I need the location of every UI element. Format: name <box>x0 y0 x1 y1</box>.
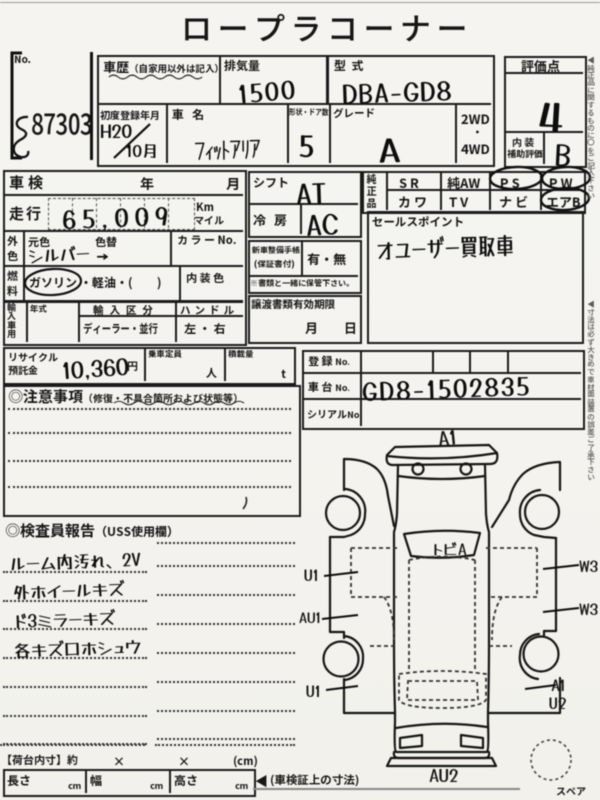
svg-text:AU1: AU1 <box>299 608 321 628</box>
svg-text:W3: W3 <box>579 556 598 577</box>
svg-text:W3: W3 <box>579 599 598 620</box>
svg-text:U2: U2 <box>549 693 566 714</box>
svg-text:AU2: AU2 <box>429 762 459 787</box>
svg-text:A1: A1 <box>437 423 458 452</box>
svg-text:U1: U1 <box>306 681 321 702</box>
svg-text:トビA: トビA <box>432 539 467 560</box>
svg-text:U1: U1 <box>304 565 319 586</box>
